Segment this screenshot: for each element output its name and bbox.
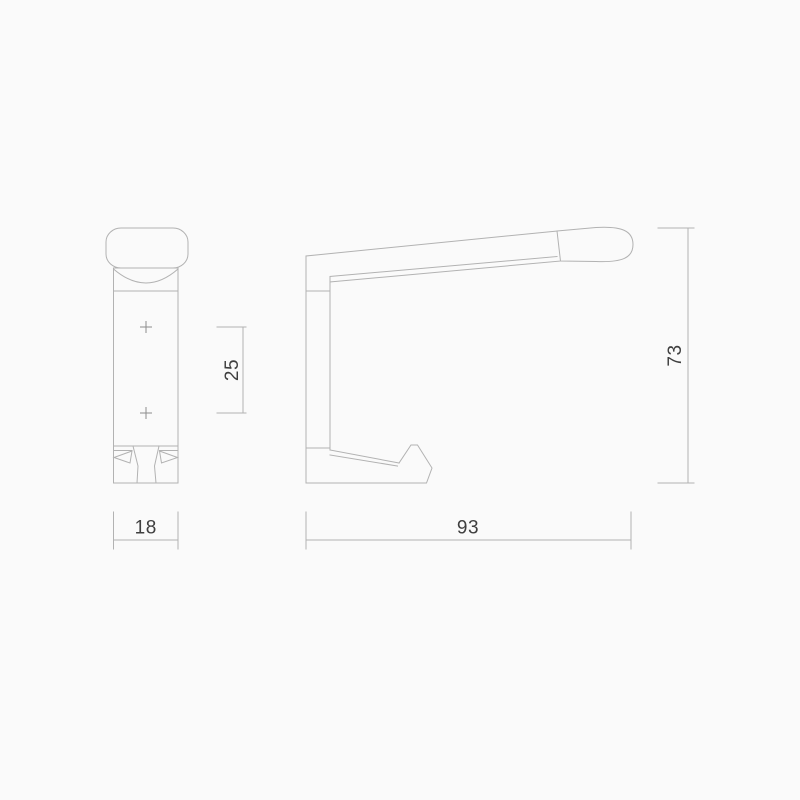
side-hook-tip-cap [557, 227, 633, 261]
dimension-height-label: 73 [665, 344, 686, 366]
side-wall-and-arm-top-edge [306, 231, 557, 483]
front-view [106, 228, 188, 483]
dimension-fixing-centres-label: 25 [222, 359, 243, 381]
technical-drawing-canvas: 18 25 93 73 [0, 0, 800, 800]
dimension-front-width: 18 [114, 512, 179, 549]
centre-mark-bottom [141, 408, 152, 419]
dimension-fixing-centres: 25 [217, 327, 246, 413]
centre-mark-top [141, 322, 152, 333]
side-arm-underside [330, 261, 561, 282]
side-lower-hook-tip-and-base [306, 445, 432, 483]
front-lower-hook-wing-left [114, 451, 133, 464]
front-hook-tip-knob [106, 228, 188, 268]
front-lower-hook-channel [133, 446, 159, 483]
side-arm-inner-line [330, 257, 557, 277]
dimension-projection: 93 [306, 512, 631, 549]
front-lower-hook-wing-right [160, 451, 179, 464]
side-view [306, 227, 633, 483]
dimension-height: 73 [658, 228, 694, 483]
side-lower-hook-arm [330, 450, 399, 466]
dimension-front-width-label: 18 [135, 518, 157, 539]
dimension-projection-label: 93 [457, 518, 479, 539]
front-neck-arc [114, 269, 179, 283]
